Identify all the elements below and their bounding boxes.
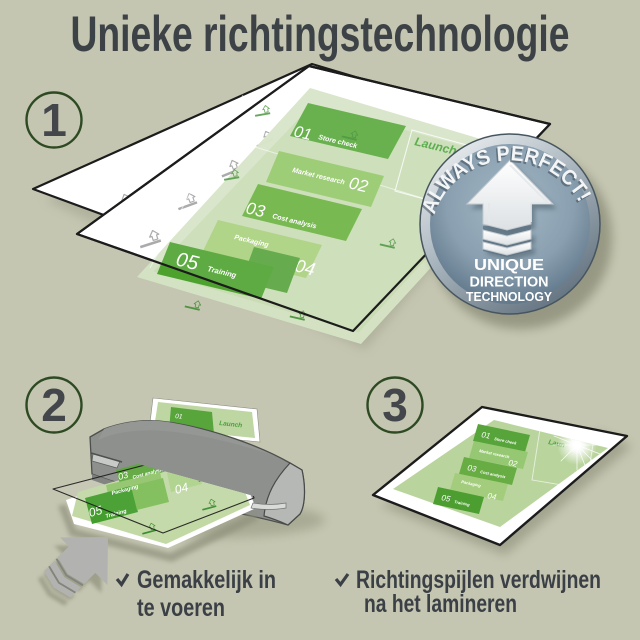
svg-text:te voeren: te voeren (137, 594, 225, 622)
svg-text:3: 3 (382, 379, 408, 431)
svg-text:01: 01 (175, 413, 183, 421)
svg-text:Unieke richtingstechnologie: Unieke richtingstechnologie (71, 6, 570, 62)
svg-text:01: 01 (481, 430, 492, 441)
svg-text:UNIQUE: UNIQUE (474, 257, 544, 274)
svg-text:2: 2 (41, 379, 67, 431)
svg-text:na het lamineren: na het lamineren (364, 590, 517, 618)
svg-text:TECHNOLOGY: TECHNOLOGY (466, 289, 552, 304)
svg-text:1: 1 (41, 94, 67, 146)
svg-text:Gemakkelijk in: Gemakkelijk in (137, 566, 276, 594)
